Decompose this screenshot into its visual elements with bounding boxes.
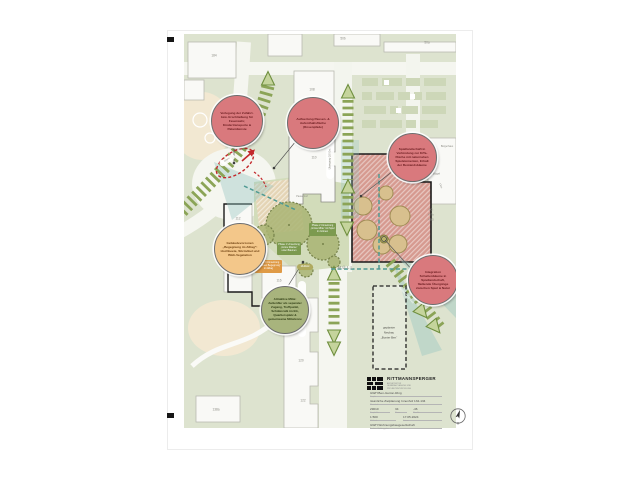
plan-sheet: 184 50b 50a 108 110 112 114 116 118 120 …	[167, 30, 473, 450]
annotation-bubble-attraktive-mitte: Attraktive Mitte: Außenflur als separate…	[261, 286, 309, 334]
field-project: GWH Ben-Gurion-Ring	[370, 391, 442, 397]
phase-box-2: Phase 2 Umsetzung „Grüne Mitte“ mit Spie…	[309, 223, 336, 236]
label-kita: KiTa	[428, 214, 433, 217]
building-label-50a: 50a	[424, 41, 429, 44]
label-110a: 110a	[438, 183, 442, 189]
field-date-label: Datum	[403, 420, 409, 422]
crop-mark-bottom	[167, 413, 174, 418]
crop-mark-top	[167, 37, 174, 42]
title-block: RITTMANNSPERGER ARCHITEKTUR GENERALPLANU…	[363, 373, 467, 435]
field-client-label: Bauherr / Auftraggeber	[370, 428, 389, 430]
annotation-bubble-aufwertung-pausenflaeche: Aufwertung Pausen- & Aufenthaltsfläche (…	[287, 97, 339, 149]
neubau-label-line3: „Bunter Ben“	[381, 337, 397, 340]
building-label-108: 108	[309, 88, 314, 91]
building-label-184: 184	[211, 54, 216, 57]
building-label-122: 122	[300, 399, 305, 402]
phase-box-1: Phase 1 Umsetzung „Grüne Räume“ unter Bä…	[277, 242, 301, 255]
firm-name: RITTMANNSPERGER	[387, 376, 436, 381]
building-label-138a: 138a	[212, 408, 219, 411]
annotation-bubble-verlegung-zufahrt: Verlegung der Zufahrt- bzw. Erschließung…	[211, 95, 263, 147]
field-content: räumliche Zielplanung Innenhof 132-134	[370, 399, 442, 405]
label-eg: EG:	[429, 209, 434, 212]
label-muell: MÜLL	[338, 266, 355, 270]
label-abg: ABG	[428, 219, 434, 222]
building-label-116: 116	[276, 279, 281, 282]
screenshot-root: { "map": { "building_labels": ["184","50…	[0, 0, 640, 480]
multifeld-pill: Multifeld	[297, 264, 313, 270]
path-label-qs-ost: Übergang QS Ost	[326, 139, 334, 179]
field-content-label: Planinhalt	[370, 404, 378, 406]
building-label-50b: 50b	[340, 37, 345, 40]
field-scale-label: Maßstab	[370, 420, 377, 422]
neubau-label-line1: geplanter	[383, 327, 395, 330]
neubau-label-line2: Neubau	[384, 332, 394, 335]
site-plan-map: 184 50b 50a 108 110 112 114 116 118 120 …	[184, 34, 456, 428]
label-buergerhaus: Bürgerhaus	[441, 146, 453, 148]
field-plan-no-label: Plan-Nr.	[413, 412, 420, 414]
field-phase-no-label: Phase	[395, 412, 400, 414]
annotation-bubble-gebaeudevorzonen: Gebäudevorzonen „Begegnung im Alltag“: H…	[214, 223, 266, 275]
north-arrow-icon	[449, 407, 467, 425]
label-pausenhof: Pausenhof	[296, 196, 307, 198]
firm-logo-icon	[367, 377, 383, 390]
building-label-120: 120	[298, 359, 303, 362]
building-label-110: 110	[311, 156, 316, 159]
annotation-bubble-integration-schattenbaeume: Integration Schattenbäume in Spiellandsc…	[408, 255, 456, 305]
field-project-no-label: Projekt-Nr.	[370, 412, 379, 414]
building-label-112: 112	[235, 217, 240, 220]
field-project-label: Projekt	[370, 396, 376, 398]
annotation-bubble-spiellandschaft: Spiellandschaft in Verbindung zur KiTa-F…	[388, 133, 437, 182]
